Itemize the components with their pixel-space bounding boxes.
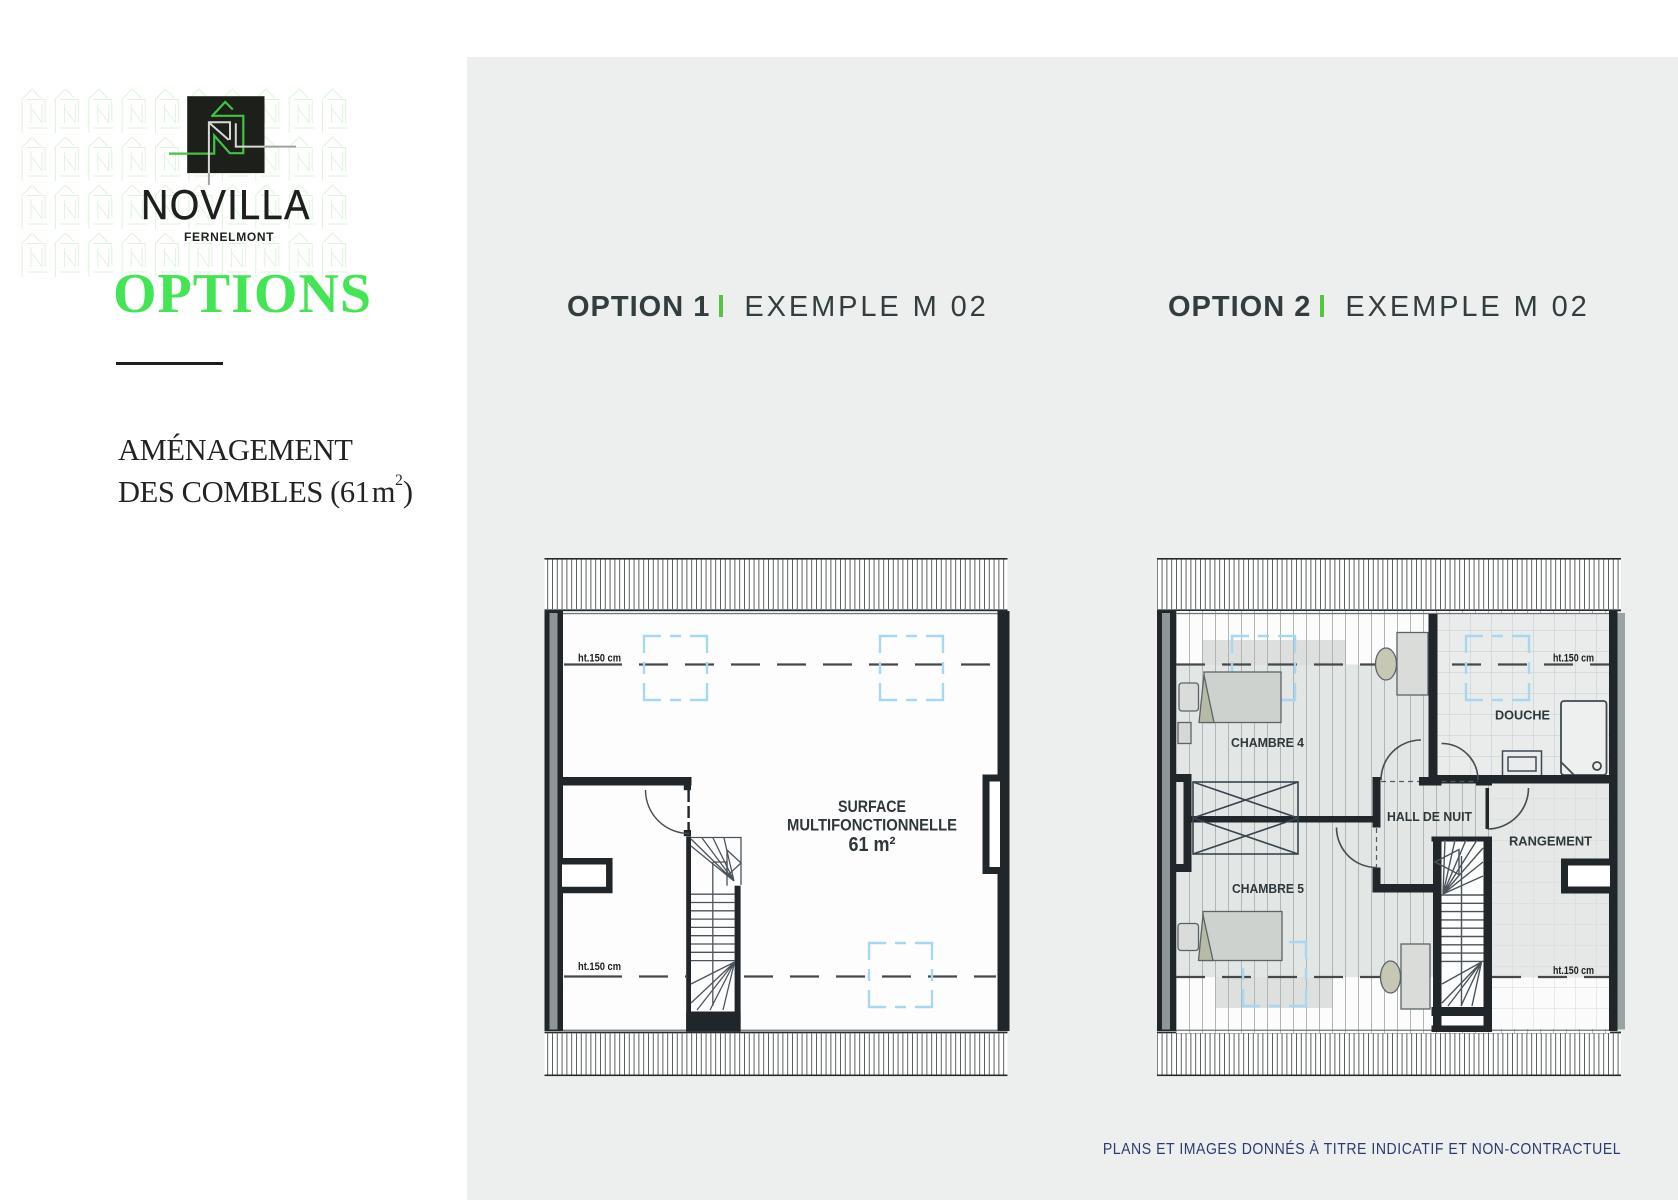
svg-text:SURFACE: SURFACE (838, 798, 906, 816)
svg-text:CHAMBRE 4: CHAMBRE 4 (1231, 736, 1304, 750)
svg-text:HALL DE NUIT: HALL DE NUIT (1387, 810, 1472, 824)
svg-text:ht.150 cm: ht.150 cm (578, 961, 621, 973)
svg-text:ht.150 cm: ht.150 cm (578, 653, 621, 665)
svg-text:ht.150 cm: ht.150 cm (1553, 653, 1594, 665)
svg-text:MULTIFONCTIONNELLE: MULTIFONCTIONNELLE (787, 817, 957, 835)
svg-text:ht.150 cm: ht.150 cm (1553, 965, 1594, 977)
svg-text:61 m²: 61 m² (849, 834, 896, 856)
svg-text:DOUCHE: DOUCHE (1495, 708, 1550, 723)
svg-text:CHAMBRE 5: CHAMBRE 5 (1232, 882, 1304, 896)
svg-text:RANGEMENT: RANGEMENT (1509, 835, 1592, 849)
